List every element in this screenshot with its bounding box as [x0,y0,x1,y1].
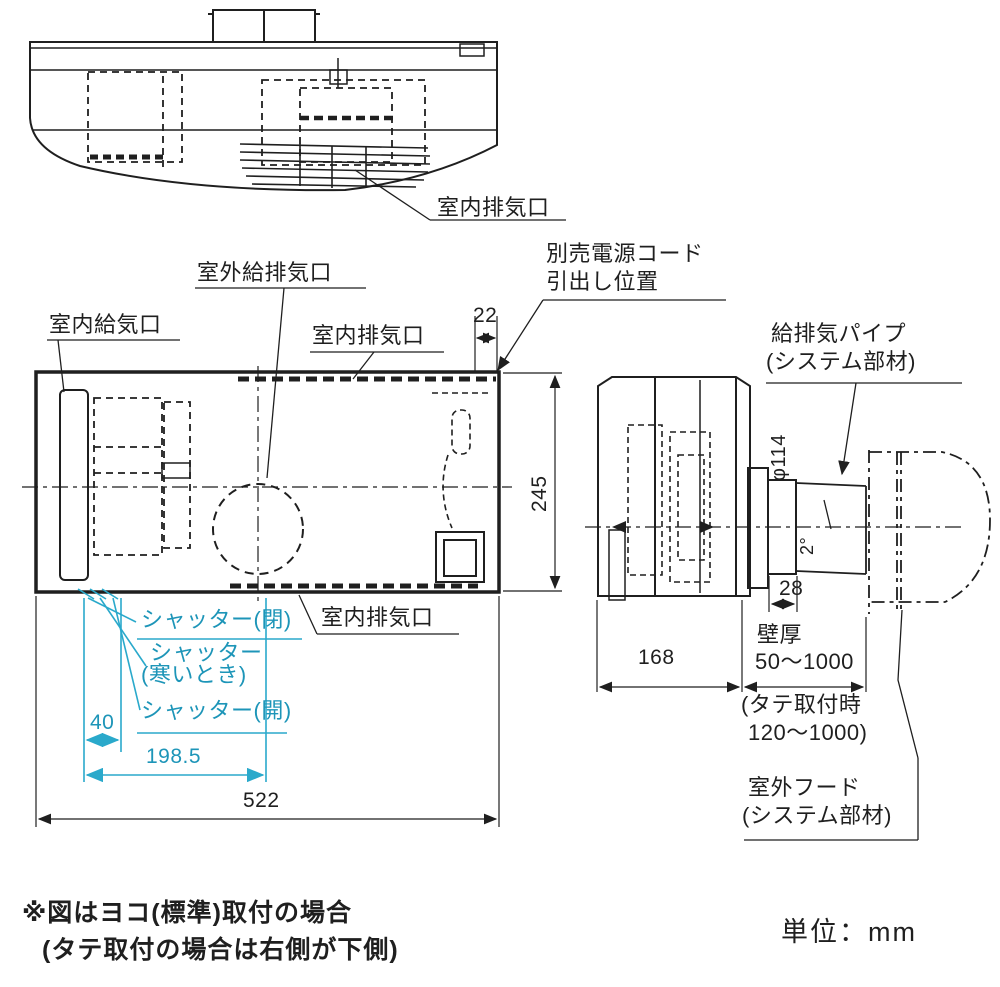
front-view-drawing [22,288,726,827]
shutter-closed-label: シャッター(閉) [141,608,292,631]
dim-width: 522 [243,789,280,813]
footnote-line2: (タテ取付の場合は右側が下側) [42,930,399,966]
dim-cord-offset: 22 [473,304,497,328]
vertical-mount-label-line2: 120～1000) [748,721,867,744]
dim-shutter-pivot: 40 [90,711,114,735]
pipe-label-line2: (システム部材) [766,350,916,373]
dim-pipe-diameter: φ114 [768,434,791,481]
installation-diagram: 室内排気口 室外給排気口 別売電源コード 引出し位置 室内給気口 室内排気口 2… [0,0,1000,987]
indoor-exhaust-bottom-label: 室内排気口 [321,606,434,629]
indoor-supply-label: 室内給気口 [49,313,162,336]
shutter-open-label: シャッター(開) [141,699,292,722]
units-label: 単位：mm [781,910,917,949]
hood-label-line1: 室外フード [748,776,861,799]
power-cord-label-line2: 引出し位置 [546,270,659,293]
shutter-cold-label-line1: シャッター [150,641,263,664]
footnote-line1: ※図はヨコ(標準)取付の場合 [22,893,352,929]
outdoor-supply-exhaust-label: 室外給排気口 [197,261,332,284]
diagram-linework [0,0,1000,987]
top-view-indoor-exhaust-label: 室内排気口 [437,196,550,219]
dim-height: 245 [528,475,552,512]
indoor-exhaust-top-label: 室内排気口 [312,324,425,347]
dim-depth: 168 [638,646,675,670]
wall-thickness-label: 壁厚 [757,623,802,646]
dim-pipe-protrusion: 28 [779,577,803,601]
pipe-label-line1: 給排気パイプ [771,322,906,345]
vertical-mount-label-line1: (タテ取付時 [741,693,861,716]
hood-label-line2: (システム部材) [742,804,892,827]
top-view-drawing [30,10,566,220]
power-cord-label-line1: 別売電源コード [546,242,704,265]
wall-thickness-range: 50～1000 [755,650,854,673]
dim-shutter-reach: 198.5 [146,745,201,769]
shutter-cold-label-line2: (寒いとき) [141,663,247,686]
dim-pipe-slope: 2° [797,537,818,555]
